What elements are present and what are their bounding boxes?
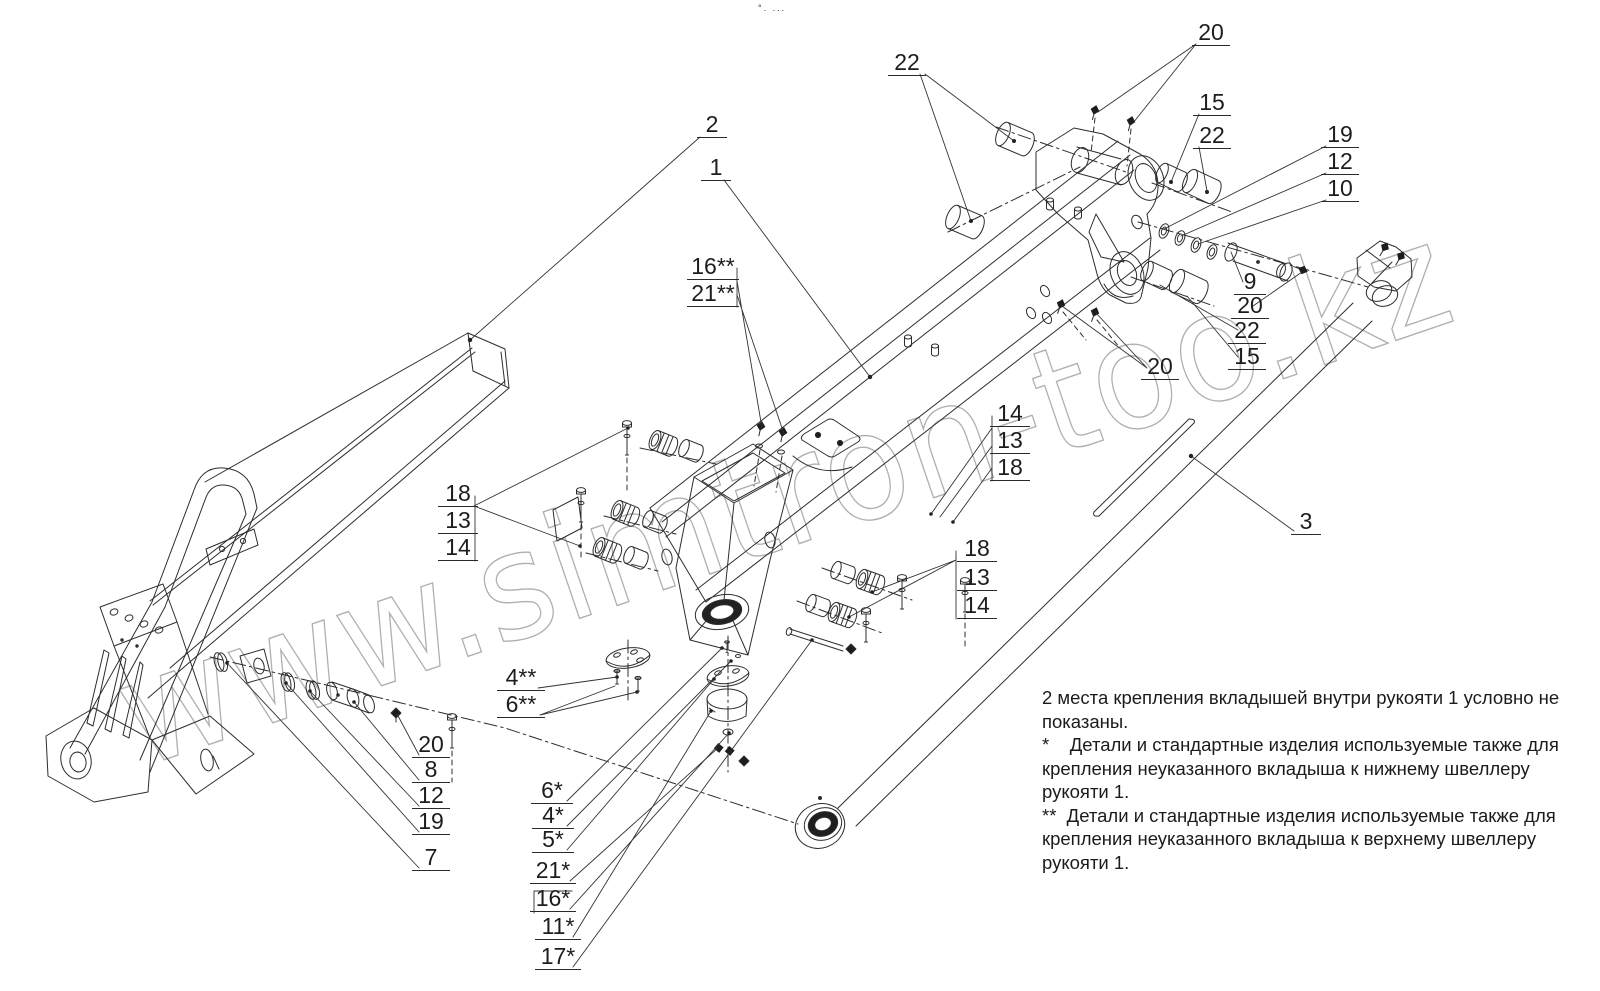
technical-notes: 2 места крепления вкладышей внутри рукоя… [1042, 686, 1570, 874]
note-paragraph: * Детали и стандартные изделия используе… [1042, 733, 1570, 804]
drawing-sheet: www.simtron-too.kz [0, 0, 1600, 991]
sheet-top-marks: °. ... [758, 3, 786, 13]
note-paragraph: ** Детали и стандартные изделия использу… [1042, 804, 1570, 875]
note-paragraph: 2 места крепления вкладышей внутри рукоя… [1042, 686, 1570, 733]
retainer-disc-parts [605, 636, 750, 772]
